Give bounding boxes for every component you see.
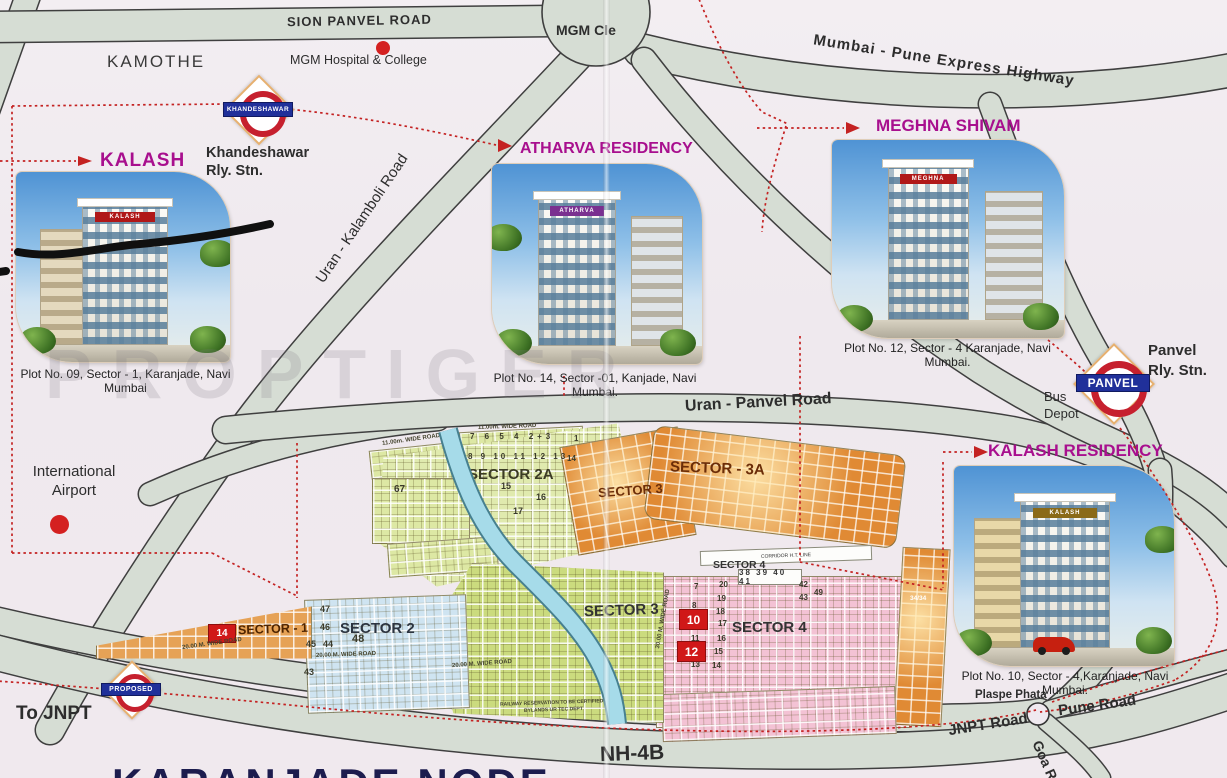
caption-line: Rly. Stn. xyxy=(206,162,309,180)
caption-line: Panvel xyxy=(1148,341,1207,361)
international-airport-label: International Airport xyxy=(14,463,134,501)
kalash-residency-label: KALASH RESIDENCY xyxy=(988,441,1163,461)
khandeshawar-station-logo: KHANDESHAWAR xyxy=(224,75,290,141)
airport-dot xyxy=(50,515,69,534)
to-jnpt-label: To JNPT xyxy=(16,703,92,725)
proposed-station-logo: PROPOSED xyxy=(103,661,157,715)
panvel-station-caption: Panvel Rly. Stn. xyxy=(1148,341,1207,380)
watermark: PROPTIGER xyxy=(45,334,637,414)
caption-line: Rly. Stn. xyxy=(1148,361,1207,381)
kamothe-label: KAMOTHE xyxy=(107,52,205,72)
kalash-label: KALASH xyxy=(100,150,185,172)
bottom-title: KARANJADE NODE xyxy=(112,760,551,778)
caption-line: Khandeshawar xyxy=(206,144,309,162)
label-line: Depot xyxy=(1044,406,1079,423)
scan-fold-crease xyxy=(603,0,610,778)
khandeshawar-station-caption: Khandeshawar Rly. Stn. xyxy=(206,144,309,180)
station-banner: PANVEL xyxy=(1076,374,1150,392)
panvel-station-logo: PANVEL xyxy=(1074,344,1150,420)
meghna-shivam-label: MEGHNA SHIVAM xyxy=(876,116,1021,136)
label-line: Bus xyxy=(1044,389,1079,406)
meghna-caption: Plot No. 12, Sector - 4 Karanjade, Navi … xyxy=(825,341,1070,369)
station-banner: KHANDESHAWAR xyxy=(223,102,293,117)
kalash-residency-caption: Plot No. 10, Sector - 4,Karanjade, Navi … xyxy=(940,669,1190,697)
station-banner: PROPOSED xyxy=(101,683,161,696)
marker-scribble xyxy=(0,224,270,273)
mgm-hospital-label: MGM Hospital & College xyxy=(290,53,427,67)
label-line: International xyxy=(14,463,134,482)
sion-panvel-road-label: SION PANVEL ROAD xyxy=(287,12,432,30)
label-line: Airport xyxy=(14,482,134,501)
bus-depot-label: Bus Depot xyxy=(1044,389,1079,423)
canal xyxy=(448,430,617,724)
location-map: CORRIDOR H.T. LINE 38 39 40 41 SECTOR 2A… xyxy=(0,0,1227,778)
